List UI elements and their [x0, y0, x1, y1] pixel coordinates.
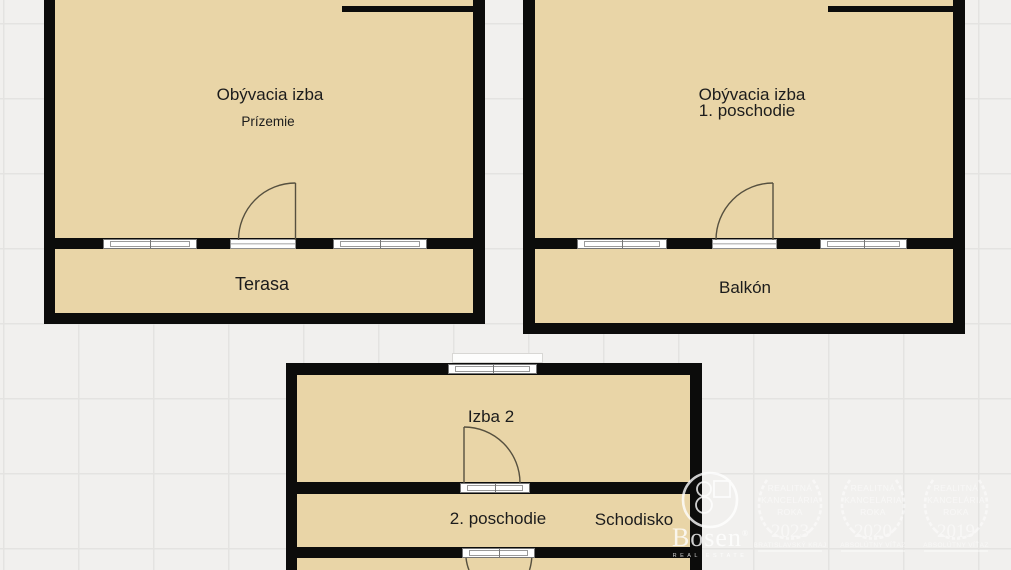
plan-first-floor: Obývacia izba 1. poschodie Balkón	[523, 0, 965, 334]
window-sill	[452, 353, 543, 363]
window	[448, 364, 537, 374]
door-threshold	[462, 548, 535, 558]
brand-tagline: REAL ESTATE	[668, 553, 752, 559]
award-winner: BRATISLAVSKÝ KRAJ	[748, 543, 832, 550]
window	[333, 239, 427, 249]
floor-label: Prízemie	[148, 114, 388, 130]
award-title-line2: KANCELÁRIA	[914, 496, 998, 505]
wall-right	[953, 0, 965, 334]
award-winner: ABSOLÚTNY VÍŤAZ	[914, 543, 998, 550]
window	[820, 239, 907, 249]
brand-logo: Bosen® REAL ESTATE	[668, 463, 752, 559]
award-title-line2: KANCELÁRIA	[748, 496, 832, 505]
award-title-line1: REALITNÁ	[831, 484, 915, 493]
award-badge-2019: REALITNÁ KANCELÁRIA ROKA 2019 ABSOLÚTNY …	[914, 470, 998, 554]
wall-partition-top	[828, 6, 953, 12]
window	[103, 239, 197, 249]
award-title-line3: ROKA	[748, 508, 832, 517]
floor-plan-canvas: Obývacia izba Prízemie Terasa Obývacia i…	[0, 0, 1011, 570]
plan-second-floor: Izba 2 2. poschodie Schodisko	[286, 363, 702, 570]
award-small-print	[841, 550, 905, 552]
plan-ground-floor: Obývacia izba Prízemie Terasa	[44, 0, 485, 324]
floor-label: 1. poschodie	[627, 100, 867, 121]
brand-name: Bosen®	[668, 525, 752, 551]
award-small-print	[758, 550, 822, 552]
door-threshold	[460, 483, 530, 493]
terrace-label: Terasa	[142, 274, 382, 296]
balcony-label: Balkón	[625, 277, 865, 298]
door-threshold	[712, 239, 777, 249]
award-year: 2019	[914, 522, 998, 541]
room-label: Izba 2	[371, 406, 611, 427]
wall-partition-top	[342, 6, 473, 12]
wall-left	[523, 0, 535, 334]
award-title-line1: REALITNÁ	[748, 484, 832, 493]
bosen-logo-icon	[670, 463, 750, 531]
window	[577, 239, 667, 249]
award-title-line3: ROKA	[831, 508, 915, 517]
wall-bottom	[523, 323, 965, 334]
award-small-print	[924, 550, 988, 552]
award-title-line2: KANCELÁRIA	[831, 496, 915, 505]
award-winner: ABSOLÚTNY VÍŤAZ	[831, 543, 915, 550]
room-label: Obývacia izba	[150, 84, 390, 105]
award-badge-2020: REALITNÁ KANCELÁRIA ROKA 2020 ABSOLÚTNY …	[831, 470, 915, 554]
wall-bottom	[44, 313, 485, 324]
wall-left	[286, 363, 297, 570]
door-threshold	[230, 239, 296, 249]
wall-right	[473, 0, 485, 324]
award-title-line1: REALITNÁ	[914, 484, 998, 493]
wall-left	[44, 0, 55, 324]
award-title-line3: ROKA	[914, 508, 998, 517]
award-badge-2023: REALITNÁ KANCELÁRIA ROKA 2023 BRATISLAVS…	[748, 470, 832, 554]
award-year: 2023	[748, 522, 832, 541]
award-year: 2020	[831, 522, 915, 541]
